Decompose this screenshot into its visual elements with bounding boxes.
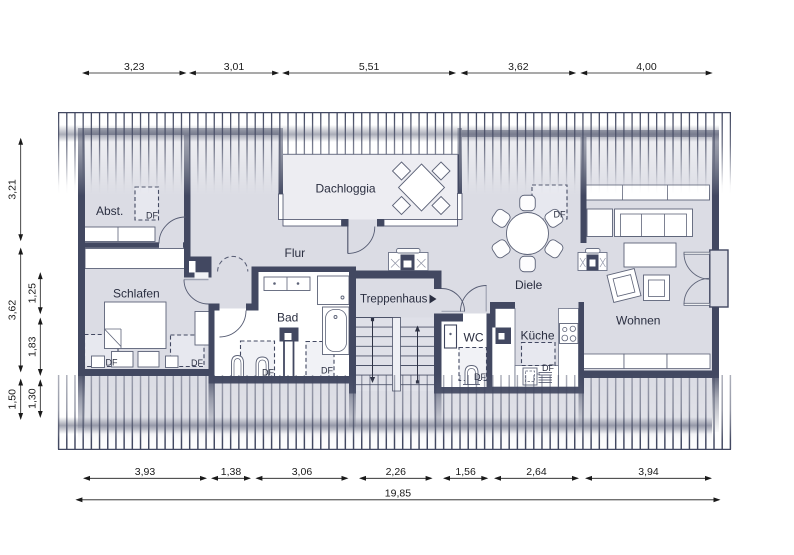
svg-text:3,62: 3,62: [7, 300, 19, 321]
svg-text:1,25: 1,25: [26, 283, 38, 304]
svg-text:DF: DF: [146, 211, 158, 221]
svg-text:DF: DF: [106, 358, 118, 368]
svg-text:5,51: 5,51: [359, 61, 380, 73]
svg-text:1,56: 1,56: [455, 466, 476, 478]
svg-text:Flur: Flur: [285, 246, 306, 260]
svg-text:DF: DF: [191, 358, 203, 368]
svg-text:DF: DF: [554, 210, 566, 220]
svg-text:1,30: 1,30: [26, 388, 38, 409]
svg-text:Treppenhaus: Treppenhaus: [360, 294, 428, 306]
svg-text:1,38: 1,38: [221, 466, 242, 478]
svg-text:4,00: 4,00: [636, 61, 657, 73]
svg-text:WC: WC: [464, 331, 484, 345]
svg-text:2,64: 2,64: [526, 466, 547, 478]
svg-text:3,94: 3,94: [638, 466, 659, 478]
svg-text:Küche: Küche: [521, 329, 555, 343]
svg-text:Wohnen: Wohnen: [616, 314, 660, 328]
svg-text:3,06: 3,06: [292, 466, 313, 478]
svg-text:Bad: Bad: [277, 311, 298, 325]
svg-text:Abst.: Abst.: [96, 204, 123, 218]
svg-text:3,01: 3,01: [224, 61, 245, 73]
svg-text:DF: DF: [542, 363, 554, 373]
svg-text:Schlafen: Schlafen: [113, 287, 160, 301]
svg-text:Dachloggia: Dachloggia: [316, 182, 376, 196]
svg-text:Diele: Diele: [515, 278, 543, 292]
svg-text:2,26: 2,26: [386, 466, 407, 478]
svg-text:1,83: 1,83: [26, 336, 38, 357]
svg-text:3,23: 3,23: [124, 61, 145, 73]
svg-text:3,21: 3,21: [7, 179, 19, 200]
svg-text:1,50: 1,50: [7, 389, 19, 410]
svg-text:19,85: 19,85: [385, 488, 411, 500]
svg-text:3,93: 3,93: [135, 466, 156, 478]
svg-text:3,62: 3,62: [508, 61, 529, 73]
